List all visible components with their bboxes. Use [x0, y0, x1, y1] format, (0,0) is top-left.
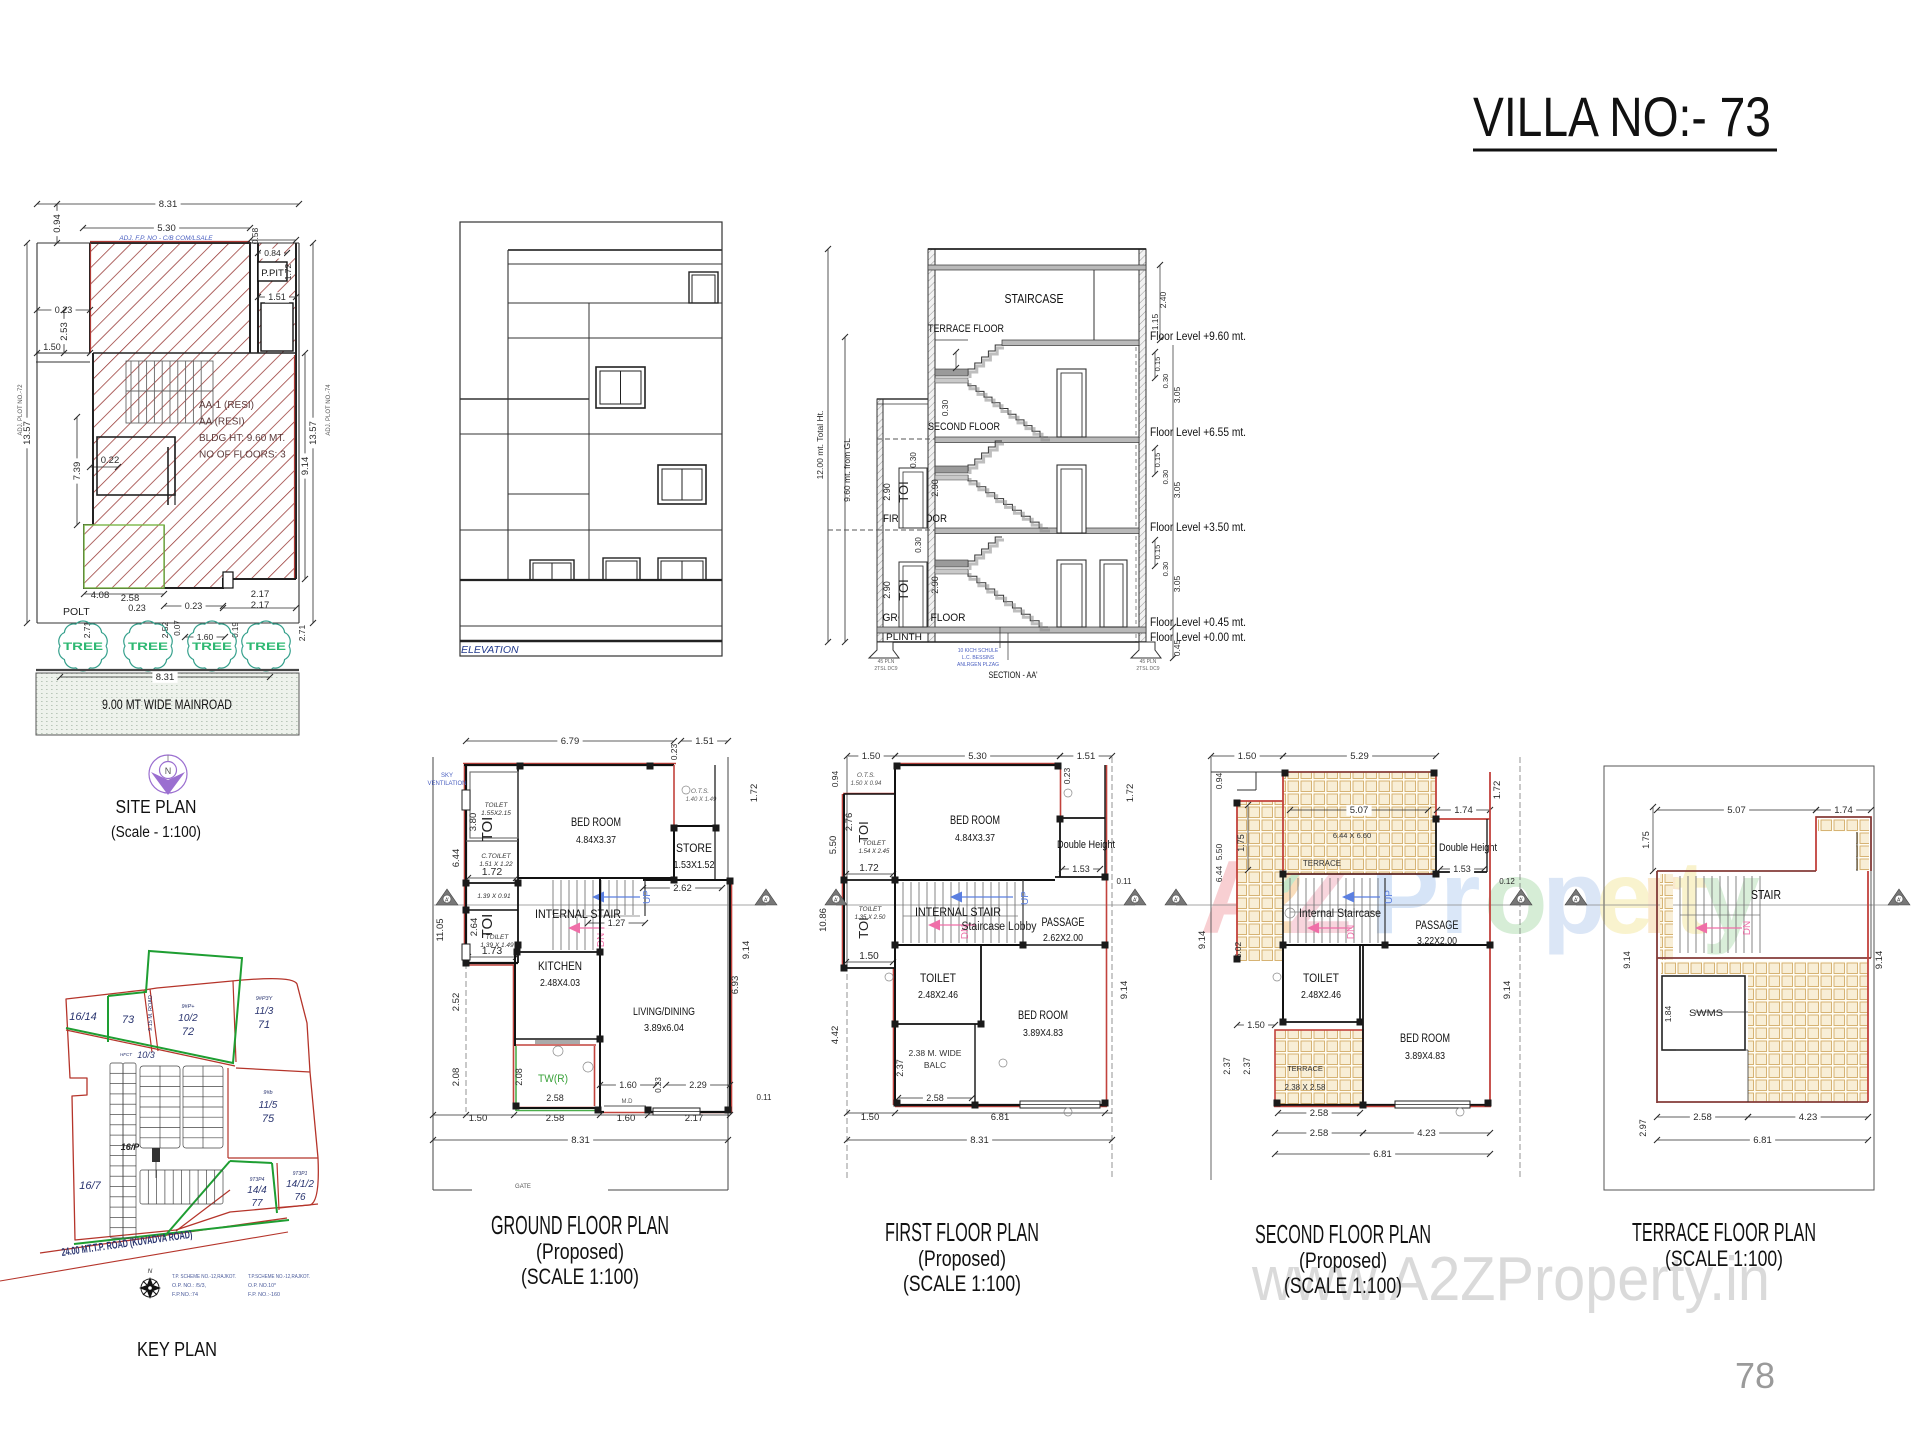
svg-text:2.48X2.46: 2.48X2.46: [1301, 989, 1341, 1001]
svg-text:12.00 mt. Total Ht.: 12.00 mt. Total Ht.: [815, 411, 825, 480]
svg-text:(SCALE 1:100): (SCALE 1:100): [1665, 1246, 1783, 1271]
svg-text:0.30: 0.30: [1161, 470, 1170, 485]
svg-text:ADJ. F.P. NO - C/B COM/LSALE: ADJ. F.P. NO - C/B COM/LSALE: [118, 235, 213, 242]
svg-text:BED ROOM: BED ROOM: [1018, 1008, 1068, 1022]
svg-text:6.79: 6.79: [561, 736, 580, 747]
svg-text:Staircase Lobby: Staircase Lobby: [962, 921, 1037, 933]
svg-text:14/1/2: 14/1/2: [286, 1179, 314, 1190]
svg-text:Internal Staircase: Internal Staircase: [1299, 906, 1381, 920]
svg-text:DN: DN: [596, 933, 607, 947]
svg-text:AA (RESI): AA (RESI): [199, 417, 245, 428]
svg-text:9.14: 9.14: [1197, 931, 1208, 950]
svg-text:(Proposed): (Proposed): [918, 1246, 1006, 1271]
svg-text:9.14: 9.14: [1119, 981, 1130, 1000]
svg-text:Double Height: Double Height: [1057, 839, 1115, 851]
svg-text:0.94: 0.94: [830, 770, 840, 787]
svg-text:TERRACE: TERRACE: [1303, 859, 1341, 868]
svg-text:GROUND FLOOR PLAN: GROUND FLOOR PLAN: [491, 1210, 669, 1240]
svg-text:1.53: 1.53: [1072, 864, 1090, 874]
svg-text:ELEVATION: ELEVATION: [461, 644, 519, 656]
svg-text:2.62: 2.62: [673, 883, 692, 894]
svg-text:Floor Level +3.50 mt.: Floor Level +3.50 mt.: [1150, 522, 1246, 534]
svg-text:(SCALE 1:100): (SCALE 1:100): [903, 1271, 1021, 1296]
svg-text:4.23: 4.23: [1799, 1112, 1818, 1123]
svg-text:ADJ. PLOT NO.-74: ADJ. PLOT NO.-74: [326, 384, 332, 436]
svg-text:INTERNAL STAIR: INTERNAL STAIR: [915, 905, 1001, 919]
svg-text:8.31: 8.31: [571, 1135, 590, 1146]
svg-text:0.30: 0.30: [1161, 562, 1170, 577]
svg-text:LIVING/DINING: LIVING/DINING: [633, 1006, 695, 1018]
svg-text:2.17: 2.17: [251, 589, 270, 600]
svg-text:TREE: TREE: [246, 641, 286, 653]
svg-text:3.05: 3.05: [1172, 481, 1182, 498]
svg-text:SECOND FLOOR PLAN: SECOND FLOOR PLAN: [1255, 1219, 1431, 1249]
svg-text:76: 76: [294, 1192, 306, 1203]
svg-text:9.14: 9.14: [300, 457, 311, 476]
svg-text:1.50: 1.50: [1247, 1020, 1265, 1030]
svg-text:Floor Level +0.00 mt.: Floor Level +0.00 mt.: [1150, 632, 1246, 644]
svg-text:2.52: 2.52: [451, 993, 462, 1012]
svg-text:11.05: 11.05: [435, 918, 446, 941]
svg-text:2.48X2.46: 2.48X2.46: [918, 989, 958, 1001]
svg-text:ANLRGEN PLZAG: ANLRGEN PLZAG: [957, 662, 999, 668]
svg-text:0.11: 0.11: [757, 1093, 773, 1102]
svg-text:1.60: 1.60: [617, 1113, 636, 1124]
svg-text:5.07: 5.07: [1727, 805, 1746, 816]
svg-text:0.30: 0.30: [914, 537, 923, 553]
svg-text:1.27: 1.27: [608, 918, 626, 928]
svg-text:1.60: 1.60: [619, 1080, 637, 1090]
svg-text:BED ROOM: BED ROOM: [1400, 1031, 1450, 1045]
svg-text:(Proposed): (Proposed): [536, 1239, 624, 1264]
svg-text:TOILET: TOILET: [863, 840, 887, 847]
svg-text:1.72: 1.72: [283, 263, 293, 280]
svg-text:TREE: TREE: [128, 641, 168, 653]
svg-text:2.37: 2.37: [895, 1059, 905, 1077]
svg-text:2.58: 2.58: [1310, 1108, 1329, 1119]
svg-text:HFCT: HFCT: [120, 1052, 133, 1057]
svg-text:UP: UP: [1020, 891, 1031, 905]
svg-text:2.90: 2.90: [882, 483, 892, 501]
svg-text:2.97: 2.97: [1638, 1119, 1648, 1137]
svg-text:10/3: 10/3: [137, 1050, 155, 1060]
svg-text:9#b: 9#b: [263, 1090, 272, 1096]
svg-text:0.30: 0.30: [909, 452, 918, 468]
svg-text:9.14: 9.14: [1622, 951, 1632, 969]
svg-text:5.29: 5.29: [1350, 751, 1369, 762]
svg-text:1.74: 1.74: [1454, 805, 1473, 816]
svg-text:9.14: 9.14: [1502, 981, 1513, 1000]
svg-text:0.23: 0.23: [1062, 767, 1072, 784]
svg-text:45 PLN: 45 PLN: [878, 659, 895, 665]
svg-text:10.86: 10.86: [818, 908, 829, 932]
svg-text:77: 77: [251, 1198, 263, 1209]
svg-text:1.53: 1.53: [1453, 864, 1471, 874]
svg-text:2.48X4.03: 2.48X4.03: [540, 977, 580, 989]
svg-text:8.31: 8.31: [156, 672, 175, 683]
svg-text:TREE: TREE: [63, 641, 103, 653]
svg-text:2.58: 2.58: [546, 1113, 565, 1124]
svg-text:1.50: 1.50: [1238, 751, 1257, 762]
svg-text:45 PLN: 45 PLN: [1140, 659, 1157, 665]
svg-text:VILLA NO:- 73: VILLA NO:- 73: [1473, 85, 1771, 148]
svg-text:1.73: 1.73: [482, 945, 503, 957]
svg-text:M.D: M.D: [622, 1099, 634, 1105]
svg-text:2.17: 2.17: [251, 600, 270, 611]
svg-text:A’: A’: [834, 898, 838, 904]
svg-text:1.72: 1.72: [482, 866, 503, 878]
svg-text:1.50: 1.50: [469, 1113, 488, 1124]
svg-text:TERRACE FLOOR PLAN: TERRACE FLOOR PLAN: [1632, 1217, 1816, 1247]
svg-text:2.08: 2.08: [514, 1068, 524, 1086]
svg-text:2.58: 2.58: [926, 1093, 944, 1103]
svg-text:DN: DN: [1346, 925, 1357, 939]
svg-text:TOILET: TOILET: [486, 934, 510, 941]
svg-text:0.22: 0.22: [101, 455, 120, 466]
svg-text:1.72: 1.72: [749, 784, 760, 803]
svg-text:A’: A’: [1574, 898, 1578, 904]
svg-text:16/P: 16/P: [121, 1142, 141, 1152]
svg-text:78: 78: [1735, 1355, 1775, 1396]
svg-text:1.74: 1.74: [1834, 805, 1853, 816]
svg-text:0.23: 0.23: [669, 743, 679, 760]
svg-text:4.23: 4.23: [1417, 1128, 1436, 1139]
svg-text:A’: A’: [1174, 898, 1178, 904]
svg-text:Floor Level +9.60 mt.: Floor Level +9.60 mt.: [1150, 331, 1246, 343]
svg-text:1.53X1.52: 1.53X1.52: [674, 859, 715, 871]
svg-text:1.50: 1.50: [43, 342, 61, 352]
svg-text:N: N: [148, 1268, 153, 1275]
svg-text:TOILET: TOILET: [1303, 971, 1340, 985]
svg-text:NO OF FLOORS: 3: NO OF FLOORS: 3: [199, 450, 286, 461]
svg-text:Floor Level +0.45 mt.: Floor Level +0.45 mt.: [1150, 617, 1246, 629]
svg-text:1.72: 1.72: [859, 863, 879, 874]
svg-text:0.15: 0.15: [1153, 357, 1162, 372]
svg-text:0.19: 0.19: [231, 622, 240, 638]
svg-text:1.51: 1.51: [1077, 751, 1096, 762]
svg-text:5.30: 5.30: [968, 751, 987, 762]
svg-text:A’: A’: [445, 898, 449, 904]
svg-text:10 KICH SCHULE: 10 KICH SCHULE: [958, 648, 999, 654]
svg-text:1.40 X 1.49: 1.40 X 1.49: [686, 797, 717, 803]
svg-text:4.08: 4.08: [91, 590, 110, 601]
svg-text:BLDG HT: 9.60 MT.: BLDG HT: 9.60 MT.: [199, 433, 285, 444]
svg-text:0.12: 0.12: [1499, 877, 1515, 886]
svg-text:2TSL DC9: 2TSL DC9: [874, 666, 897, 672]
svg-text:73: 73: [122, 1014, 135, 1026]
svg-text:8.31: 8.31: [159, 199, 178, 210]
svg-text:F.P.NO.:74: F.P.NO.:74: [172, 1292, 198, 1298]
svg-text:1.72: 1.72: [1492, 781, 1503, 800]
svg-text:(Proposed): (Proposed): [1299, 1248, 1387, 1273]
svg-text:(Scale - 1:100): (Scale - 1:100): [111, 824, 201, 841]
svg-text:6.81: 6.81: [991, 1112, 1010, 1123]
svg-text:BALC: BALC: [924, 1060, 946, 1070]
svg-text:ADJ. PLOT NO.-72: ADJ. PLOT NO.-72: [18, 384, 24, 436]
svg-text:9.15 M. ROAD: 9.15 M. ROAD: [148, 995, 154, 1031]
svg-text:STAIR: STAIR: [1751, 888, 1781, 902]
svg-text:6.93: 6.93: [730, 976, 741, 995]
svg-text:2.64: 2.64: [469, 918, 480, 937]
svg-text:9#P3Y: 9#P3Y: [256, 996, 273, 1002]
svg-text:1.39 X 0.91: 1.39 X 0.91: [477, 893, 511, 900]
svg-text:0.45: 0.45: [1172, 639, 1182, 656]
svg-text:POLT: POLT: [63, 606, 90, 618]
svg-text:PASSAGE: PASSAGE: [1416, 920, 1459, 932]
svg-text:9.00 MT WIDE MAINROAD: 9.00 MT WIDE MAINROAD: [102, 697, 232, 712]
svg-text:2.08: 2.08: [451, 1068, 462, 1087]
svg-text:0.58: 0.58: [250, 227, 260, 244]
svg-text:0.07: 0.07: [173, 620, 182, 636]
svg-text:Floor Level +6.55 mt.: Floor Level +6.55 mt.: [1150, 427, 1246, 439]
svg-text:2.76: 2.76: [844, 813, 855, 832]
svg-text:O.P. NO.10*: O.P. NO.10*: [248, 1283, 277, 1289]
svg-text:UP: UP: [1384, 890, 1395, 904]
svg-text:0.30: 0.30: [940, 399, 950, 416]
svg-text:(SCALE 1:100): (SCALE 1:100): [1284, 1273, 1402, 1298]
svg-text:TOI: TOI: [896, 481, 911, 502]
svg-text:14/4: 14/4: [247, 1185, 267, 1196]
svg-text:UP: UP: [642, 890, 653, 904]
svg-text:STORE: STORE: [676, 843, 712, 855]
svg-text:1.84: 1.84: [1663, 1005, 1673, 1022]
svg-text:2.37: 2.37: [1222, 1057, 1232, 1075]
svg-text:11/5: 11/5: [259, 1100, 278, 1111]
svg-text:6.44: 6.44: [451, 849, 462, 868]
svg-text:0.30: 0.30: [1161, 374, 1170, 389]
svg-text:71: 71: [258, 1019, 270, 1031]
svg-text:T.P. SCHEME NO.-12,RAJKOT.: T.P. SCHEME NO.-12,RAJKOT.: [172, 1274, 236, 1280]
svg-text:4.84X3.37: 4.84X3.37: [955, 832, 995, 844]
svg-text:PASSAGE: PASSAGE: [1042, 917, 1085, 929]
svg-text:TERRACE FLOOR: TERRACE FLOOR: [928, 323, 1004, 335]
svg-text:0.23: 0.23: [185, 601, 203, 611]
svg-text:4.84X3.37: 4.84X3.37: [576, 834, 616, 846]
svg-text:A’: A’: [1133, 898, 1137, 904]
svg-text:0.11: 0.11: [1117, 877, 1133, 886]
svg-text:O.P. NO.: /5/3,: O.P. NO.: /5/3,: [172, 1283, 206, 1289]
svg-text:PLINTH: PLINTH: [886, 632, 922, 643]
svg-text:AA-1 (RESI): AA-1 (RESI): [199, 400, 254, 411]
svg-text:TOILET: TOILET: [920, 971, 957, 985]
svg-text:16/14: 16/14: [69, 1011, 97, 1023]
svg-text:2.53: 2.53: [59, 322, 70, 341]
svg-text:DN: DN: [1742, 921, 1753, 935]
svg-text:2.37: 2.37: [1242, 1057, 1252, 1075]
svg-text:1.50 X 0.94: 1.50 X 0.94: [851, 781, 882, 787]
svg-text:C.TOILET: C.TOILET: [481, 853, 511, 860]
svg-text:1.72: 1.72: [1125, 784, 1136, 803]
svg-text:TOI: TOI: [896, 579, 911, 600]
svg-text:TOILET: TOILET: [485, 802, 509, 809]
svg-text:1.75: 1.75: [1641, 831, 1651, 849]
svg-text:3.05: 3.05: [1172, 575, 1182, 592]
svg-text:10/2: 10/2: [178, 1013, 198, 1024]
svg-text:STAIRCASE: STAIRCASE: [1005, 291, 1064, 306]
svg-text:72: 72: [182, 1026, 194, 1038]
svg-text:3.89X4.83: 3.89X4.83: [1023, 1027, 1063, 1039]
svg-text:SECOND FLOOR: SECOND FLOOR: [928, 421, 1000, 433]
svg-text:2.52: 2.52: [160, 621, 170, 638]
svg-text:1.35 X 2.50: 1.35 X 2.50: [855, 915, 886, 921]
svg-text:9.14: 9.14: [741, 941, 752, 960]
svg-text:0.84: 0.84: [264, 248, 281, 258]
svg-text:9.14: 9.14: [1874, 951, 1885, 970]
svg-text:1.75: 1.75: [1236, 834, 1246, 852]
svg-text:9#P+: 9#P+: [182, 1004, 196, 1010]
svg-text:0.94: 0.94: [52, 214, 63, 233]
svg-text:VENTILATION: VENTILATION: [428, 781, 467, 787]
svg-text:BED ROOM: BED ROOM: [571, 815, 621, 829]
svg-text:1.54 X 2.45: 1.54 X 2.45: [859, 849, 890, 855]
svg-text:(SCALE 1:100): (SCALE 1:100): [521, 1264, 639, 1289]
svg-text:2.90: 2.90: [882, 581, 892, 599]
svg-text:TERRACE: TERRACE: [1287, 1064, 1323, 1073]
svg-text:1.55X2.15: 1.55X2.15: [481, 810, 511, 817]
svg-text:TW(R): TW(R): [538, 1073, 568, 1085]
svg-text:3.80: 3.80: [468, 813, 479, 832]
svg-text:1.50: 1.50: [859, 951, 879, 962]
svg-text:A’: A’: [1519, 898, 1523, 904]
svg-text:P.PIT: P.PIT: [261, 268, 284, 279]
svg-text:2.71: 2.71: [297, 624, 307, 641]
svg-text:GATE: GATE: [515, 1184, 531, 1190]
svg-text:0.15: 0.15: [1153, 545, 1162, 560]
svg-text:KEY PLAN: KEY PLAN: [137, 1339, 217, 1361]
svg-text:2.90: 2.90: [930, 479, 940, 497]
svg-text:9T3P1: 9T3P1: [293, 1171, 308, 1177]
svg-text:Double Height: Double Height: [1439, 842, 1497, 854]
svg-text:0.23: 0.23: [128, 603, 146, 613]
svg-text:A’: A’: [1897, 898, 1901, 904]
svg-text:1.51: 1.51: [268, 292, 286, 302]
svg-text:3.05: 3.05: [1172, 386, 1182, 403]
svg-text:2.58: 2.58: [1310, 1128, 1329, 1139]
svg-text:0.94: 0.94: [1214, 772, 1224, 789]
svg-text:6.81: 6.81: [1753, 1135, 1772, 1146]
svg-text:L.C. BESSINS: L.C. BESSINS: [962, 655, 995, 661]
svg-text:O.T.S.: O.T.S.: [691, 788, 709, 795]
svg-text:BED ROOM: BED ROOM: [950, 813, 1000, 827]
svg-text:TREE: TREE: [192, 641, 232, 653]
svg-text:9.60 mt. from GL: 9.60 mt. from GL: [842, 438, 852, 502]
svg-text:SECTION - AA': SECTION - AA': [989, 670, 1038, 681]
svg-text:SKY: SKY: [441, 773, 453, 779]
svg-text:1.15: 1.15: [1150, 313, 1160, 330]
svg-text:6.81: 6.81: [1373, 1149, 1392, 1160]
svg-text:2.38 X 2.58: 2.38 X 2.58: [1285, 1083, 1326, 1092]
svg-text:8.31: 8.31: [970, 1135, 989, 1146]
svg-text:2.62X2.00: 2.62X2.00: [1043, 932, 1083, 944]
svg-text:FIRST FLOOR PLAN: FIRST FLOOR PLAN: [885, 1217, 1039, 1247]
svg-text:TOILET: TOILET: [859, 906, 883, 913]
svg-text:4.42: 4.42: [830, 1026, 841, 1045]
svg-text:5.30: 5.30: [157, 223, 176, 234]
svg-text:SWMS: SWMS: [1689, 1008, 1723, 1019]
svg-text:5.07: 5.07: [1350, 805, 1369, 816]
svg-text:3.89x6.04: 3.89x6.04: [644, 1022, 684, 1034]
svg-text:0.15: 0.15: [1153, 453, 1162, 468]
svg-text:TOI: TOI: [479, 817, 496, 842]
svg-text:16/7: 16/7: [79, 1180, 101, 1192]
svg-text:0.23: 0.23: [654, 1077, 663, 1093]
svg-text:2TSL DC9: 2TSL DC9: [1136, 666, 1159, 672]
svg-text:2.29: 2.29: [689, 1080, 707, 1090]
svg-text:1.51: 1.51: [695, 736, 714, 747]
svg-text:A’: A’: [764, 898, 768, 904]
svg-text:SITE PLAN: SITE PLAN: [116, 797, 197, 817]
svg-text:6.44 X 6.60: 6.44 X 6.60: [1333, 831, 1371, 840]
svg-text:3.89X4.83: 3.89X4.83: [1405, 1050, 1445, 1062]
svg-text:2.17: 2.17: [685, 1113, 704, 1124]
svg-text:O.T.S.: O.T.S.: [857, 772, 875, 779]
svg-text:2.90: 2.90: [930, 576, 940, 594]
svg-text:1.50: 1.50: [861, 1112, 880, 1123]
svg-text:N: N: [165, 766, 172, 776]
svg-text:2.58: 2.58: [546, 1093, 564, 1103]
svg-text:5.50: 5.50: [1214, 843, 1224, 860]
svg-text:11/3: 11/3: [255, 1006, 274, 1017]
svg-text:6.44: 6.44: [1214, 865, 1224, 882]
svg-text:KITCHEN: KITCHEN: [538, 959, 582, 973]
svg-text:2.40: 2.40: [1158, 291, 1168, 308]
svg-text:1.50: 1.50: [862, 751, 881, 762]
svg-text:5.50: 5.50: [828, 836, 839, 855]
svg-text:13.57: 13.57: [308, 421, 319, 445]
svg-text:T.P.SCHEME NO.-12,RAJKOT.: T.P.SCHEME NO.-12,RAJKOT.: [248, 1274, 310, 1280]
svg-text:2.38 M. WIDE: 2.38 M. WIDE: [909, 1048, 962, 1058]
svg-text:75: 75: [262, 1113, 275, 1125]
svg-text:2.58: 2.58: [1693, 1112, 1712, 1123]
svg-text:9T3P4: 9T3P4: [250, 1177, 265, 1183]
svg-text:F.P. NO.:-160: F.P. NO.:-160: [248, 1292, 280, 1298]
svg-text:7.39: 7.39: [72, 462, 83, 481]
